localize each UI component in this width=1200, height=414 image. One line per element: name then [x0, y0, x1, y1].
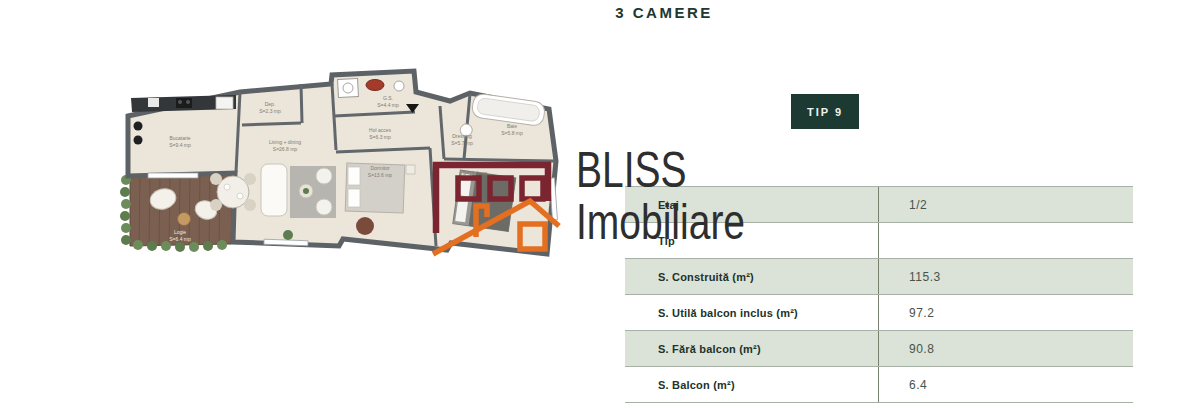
floor-plan-drawing: Bucatarie S=9.4 mp Dep. S=2.3 mp Living …	[118, 68, 573, 268]
svg-text:Logie: Logie	[174, 229, 186, 235]
svg-text:S=9.4 mp: S=9.4 mp	[169, 142, 191, 148]
row-label: Tip	[625, 223, 879, 258]
svg-text:Dormitor: Dormitor	[370, 165, 390, 171]
svg-text:S=26.8 mp: S=26.8 mp	[273, 146, 298, 152]
svg-text:G.S.: G.S.	[383, 95, 393, 101]
svg-text:S=2.3 mp: S=2.3 mp	[259, 108, 281, 114]
row-label: Etaj	[625, 187, 879, 222]
table-row-etaj: Etaj 1/2	[625, 187, 1133, 223]
row-value: 90.8	[879, 331, 1133, 366]
svg-text:S=14.8 mp: S=14.8 mp	[463, 170, 488, 176]
svg-text:S=13.6 mp: S=13.6 mp	[368, 172, 393, 178]
row-value: 97.2	[879, 295, 1133, 330]
page-title: 3 CAMERE	[584, 4, 744, 21]
svg-text:Dormitor matrimonial: Dormitor matrimonial	[452, 163, 498, 169]
row-label: S. Balcon (m²)	[625, 367, 879, 402]
floor-plan: Bucatarie S=9.4 mp Dep. S=2.3 mp Living …	[118, 68, 573, 268]
svg-text:Bucatarie: Bucatarie	[169, 135, 190, 141]
table-row-construita: S. Construită (m²) 115.3	[625, 259, 1133, 295]
row-value: 115.3	[879, 259, 1133, 294]
svg-text:Dep.: Dep.	[265, 101, 276, 107]
tip-9-badge[interactable]: TIP 9	[791, 94, 859, 129]
row-label: S. Construită (m²)	[625, 259, 879, 294]
svg-text:Living + dining: Living + dining	[269, 139, 301, 145]
table-row-utila: S. Utilă balcon inclus (m²) 97.2	[625, 295, 1133, 331]
row-label: S. Utilă balcon inclus (m²)	[625, 295, 879, 330]
svg-text:S=5.8 mp: S=5.8 mp	[501, 130, 523, 136]
svg-text:S=6.3 mp: S=6.3 mp	[369, 134, 391, 140]
row-label: S. Fără balcon (m²)	[625, 331, 879, 366]
svg-text:Hol acces: Hol acces	[369, 127, 391, 133]
svg-text:Baie: Baie	[507, 123, 517, 129]
table-row-balcon: S. Balcon (m²) 6.4	[625, 367, 1133, 403]
row-value	[879, 223, 1133, 258]
row-value: 1/2	[879, 187, 1133, 222]
table-row-tip: Tip	[625, 223, 1133, 259]
svg-text:S=6.4 mp: S=6.4 mp	[169, 236, 191, 242]
table-row-fara-balcon: S. Fără balcon (m²) 90.8	[625, 331, 1133, 367]
svg-text:Dressing: Dressing	[452, 133, 472, 139]
svg-text:S=5.7 mp: S=5.7 mp	[451, 140, 473, 146]
row-value: 6.4	[879, 367, 1133, 402]
spec-table: Etaj 1/2 Tip S. Construită (m²) 115.3 S.…	[625, 186, 1133, 403]
master-bedroom-furniture	[453, 170, 516, 231]
svg-text:S=4.4 mp: S=4.4 mp	[377, 102, 399, 108]
